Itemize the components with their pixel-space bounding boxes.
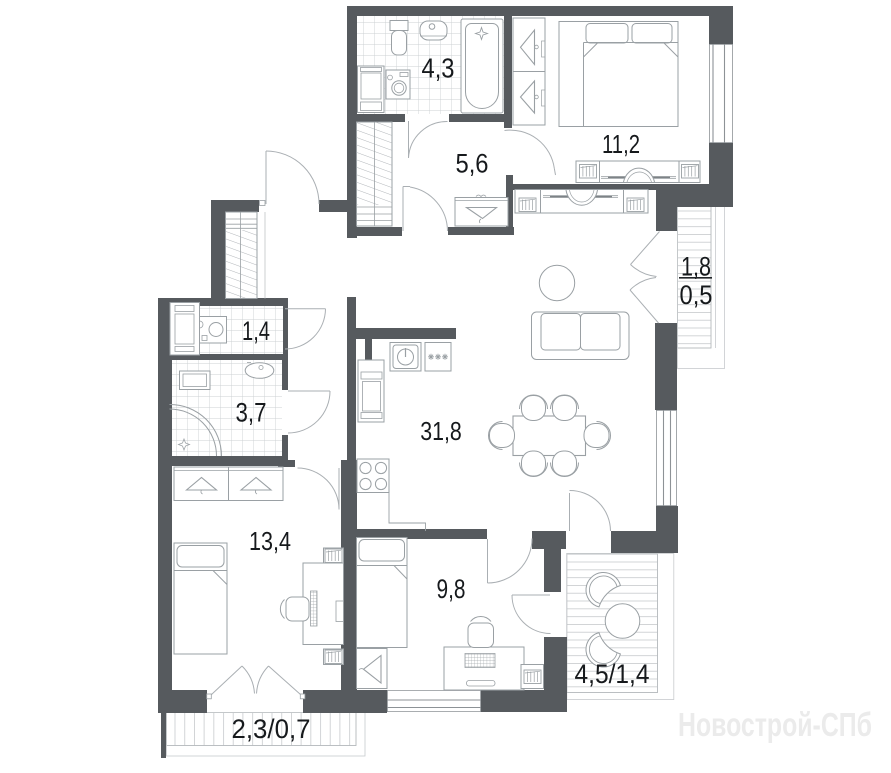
svg-text:11,2: 11,2: [602, 129, 640, 159]
svg-text:1,4: 1,4: [242, 316, 270, 346]
svg-text:3,7: 3,7: [236, 398, 267, 428]
svg-text:5,6: 5,6: [456, 149, 489, 179]
svg-text:9,8: 9,8: [437, 574, 466, 604]
svg-text:Новострой-СПб: Новострой-СПб: [678, 706, 872, 743]
svg-text:4,5/1,4: 4,5/1,4: [575, 659, 650, 689]
svg-text:0,5: 0,5: [680, 280, 713, 310]
svg-text:13,4: 13,4: [249, 526, 291, 556]
svg-text:2,3/0,7: 2,3/0,7: [232, 714, 311, 744]
svg-text:31,8: 31,8: [420, 416, 462, 446]
svg-text:4,3: 4,3: [422, 53, 455, 84]
